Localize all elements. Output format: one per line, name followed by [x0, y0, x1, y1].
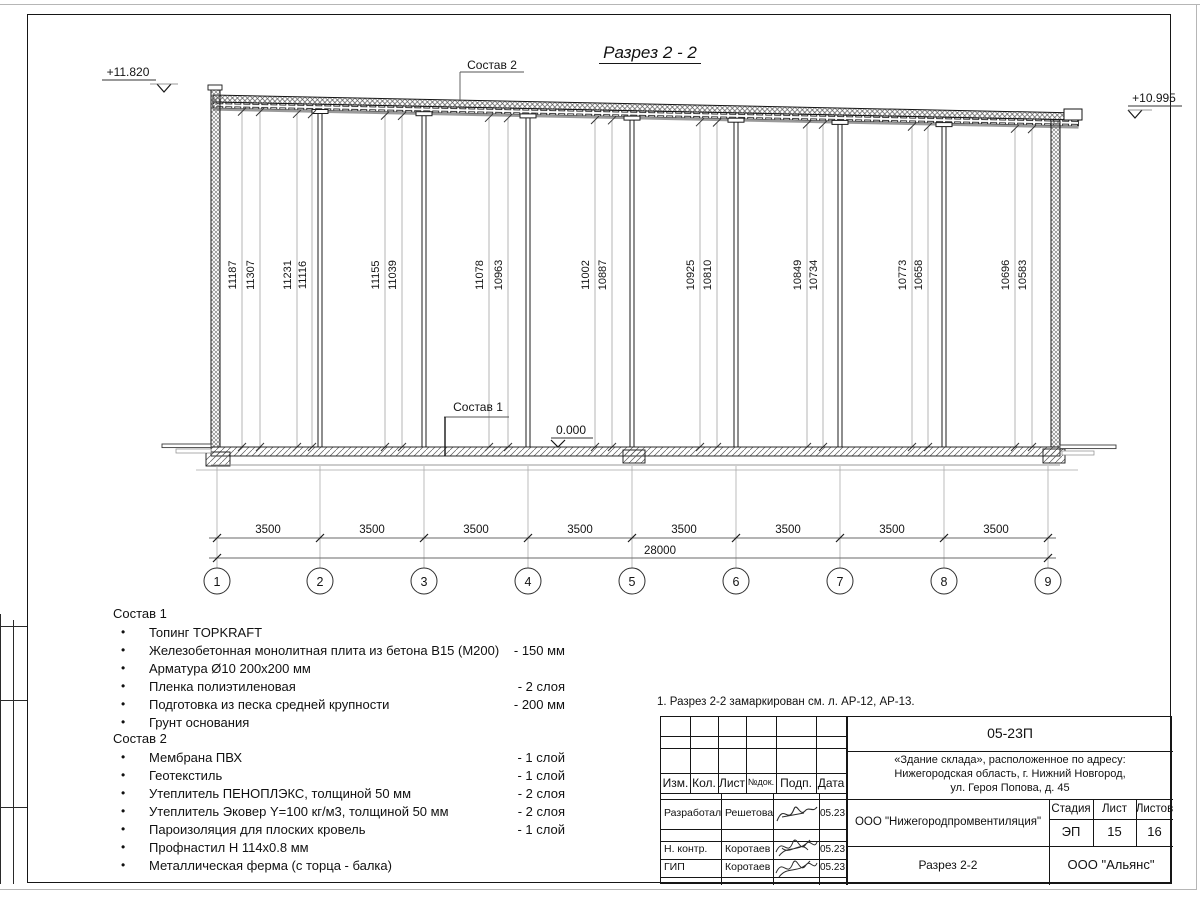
axis-bubbles: 1 2 3 4 5 6 7 8 9 [204, 568, 1061, 594]
list-item: •Железобетонная монолитная плита из бето… [113, 642, 565, 660]
bullet-icon: • [121, 802, 125, 820]
axis-number: 8 [941, 575, 948, 589]
axis-number: 1 [214, 575, 221, 589]
left-wall [211, 88, 220, 447]
threshold-left [162, 444, 211, 453]
height-dim-label: 11307 [245, 260, 257, 290]
footing-left [206, 452, 230, 466]
bay-dim-label: 3500 [879, 524, 905, 536]
height-dim-label: 11187 [227, 261, 239, 290]
drawing-sheet: { "title": "Разрез 2 - 2", "elevations":… [0, 0, 1200, 900]
axis-number: 7 [837, 575, 844, 589]
sidebar-line-outer [0, 614, 1, 884]
height-dim-label: 10773 [897, 260, 909, 291]
bullet-icon: • [121, 838, 125, 856]
page-edge-bottom [0, 889, 1197, 890]
sheet-label: Лист [1093, 799, 1136, 819]
list-item: •Мембрана ПВХ- 1 слой [113, 749, 565, 767]
height-dim-labels: 11187 11307 11231 11116 11155 11039 1107… [227, 260, 1029, 291]
axis-number: 2 [317, 575, 324, 589]
signature [774, 801, 819, 828]
bay-dim-label: 3500 [775, 524, 801, 536]
project-code: 05-23П [847, 717, 1173, 751]
height-dim-label: 11039 [387, 260, 399, 290]
list-item: •Подготовка из песка средней крупности- … [113, 696, 565, 714]
right-wall [1051, 121, 1060, 447]
total-dim-label: 28000 [644, 545, 676, 557]
list-item: •Утеплитель Эковер Y=100 кг/м3, толщиной… [113, 803, 565, 821]
list-item: •Пленка полиэтиленовая- 2 слоя [113, 678, 565, 696]
height-dim-label: 10849 [792, 260, 804, 291]
threshold-right [1060, 445, 1116, 455]
row-role: Разработал [664, 799, 720, 829]
height-dim-label: 11002 [580, 260, 592, 290]
bay-dim-label: 3500 [359, 524, 385, 536]
height-dim-label: 11155 [370, 261, 382, 290]
height-dim-label: 10925 [685, 260, 697, 291]
elevation-right: +10.995 [1128, 91, 1182, 118]
elevation-left-value: +11.820 [107, 65, 150, 79]
col-izm: Изм. [661, 773, 690, 793]
sostav1-heading: Состав 1 [113, 605, 565, 624]
list-item: •Топинг TOPKRAFT [113, 624, 565, 642]
height-dim-label: 10658 [913, 260, 925, 291]
bullet-icon: • [121, 695, 125, 713]
list-item: •Арматура Ø10 200х200 мм [113, 660, 565, 678]
left-wall-cap [208, 85, 222, 90]
bullet-icon: • [121, 820, 125, 838]
height-dim-label: 10583 [1017, 260, 1029, 291]
row-name: Коротаев [725, 859, 772, 877]
stage-label: Стадия [1049, 799, 1093, 819]
bullet-icon: • [121, 748, 125, 766]
col-list: Лист [718, 773, 746, 793]
axis-lines [217, 466, 1048, 568]
sidebar-line-inner [13, 620, 14, 884]
project-object: «Здание склада», расположенное по адресу… [847, 751, 1173, 799]
sheet-note: 1. Разрез 2-2 замаркирован см. л. АР-12,… [657, 696, 915, 708]
bullet-icon: • [121, 784, 125, 802]
height-dim-label: 11231 [282, 260, 294, 290]
height-dim-label: 10963 [493, 260, 505, 291]
height-dim-label: 10696 [1000, 260, 1012, 291]
section-drawing: 11187 11307 11231 11116 11155 11039 1107… [0, 0, 1200, 620]
footing-middle [623, 450, 645, 463]
sostav1-callout: Состав 1 [453, 400, 503, 414]
stage-value: ЭП [1049, 819, 1093, 846]
axis-number: 4 [525, 575, 532, 589]
bay-dim-label: 3500 [671, 524, 697, 536]
axis-number: 6 [733, 575, 740, 589]
sostav2-heading: Состав 2 [113, 730, 565, 749]
bullet-icon: • [121, 713, 125, 731]
axis-number: 5 [629, 575, 636, 589]
elevation-right-value: +10.995 [1132, 91, 1176, 105]
axis-number: 9 [1045, 575, 1052, 589]
bay-dim-label: 3500 [255, 524, 281, 536]
elevation-zero: 0.000 [551, 423, 593, 447]
height-dim-label: 11116 [297, 261, 309, 289]
signature [774, 856, 819, 880]
doc-title: Разрез 2-2 [847, 846, 1049, 885]
sidebar-divider [0, 626, 27, 627]
bullet-icon: • [121, 766, 125, 784]
title-block: Изм. Кол. Лист №док. Подп. Дата Разработ… [660, 716, 1172, 884]
sidebar-divider [0, 700, 27, 701]
bullet-icon: • [121, 623, 125, 641]
sidebar-divider [0, 807, 27, 808]
row-date: 05.23 [819, 841, 846, 859]
elevation-left: +11.820 [102, 65, 178, 92]
bullet-icon: • [121, 641, 125, 659]
bullet-icon: • [121, 659, 125, 677]
height-dim-label: 10810 [702, 260, 714, 291]
row-name: Коротаев [725, 841, 772, 859]
row-date: 05.23 [819, 799, 846, 829]
axis-number: 3 [421, 575, 428, 589]
col-kol: Кол. [690, 773, 718, 793]
row-name: Решетова [725, 799, 772, 829]
bullet-icon: • [121, 677, 125, 695]
col-data: Дата [816, 773, 846, 793]
height-dim-label: 11078 [474, 260, 486, 290]
row-date: 05.23 [819, 859, 846, 877]
list-item: •Пароизоляция для плоских кровель- 1 сло… [113, 821, 565, 839]
list-item: •Геотекстиль- 1 слой [113, 767, 565, 785]
row-role: Н. контр. [664, 841, 720, 859]
sostav2-callout: Состав 2 [467, 58, 517, 72]
bay-dim-label: 3500 [463, 524, 489, 536]
sheets-value: 16 [1136, 819, 1173, 846]
sheets-label: Листов [1136, 799, 1173, 819]
sostav2-leader: Состав 2 [460, 58, 524, 101]
list-item: •Утеплитель ПЕНОПЛЭКС, толщиной 50 мм- 2… [113, 785, 565, 803]
height-dim-label: 10734 [808, 260, 820, 291]
columns [312, 110, 952, 448]
company-name: ООО "Альянс" [1049, 846, 1173, 885]
height-dim-label: 10887 [597, 260, 609, 291]
elevation-zero-value: 0.000 [556, 423, 586, 437]
col-podp: Подп. [776, 773, 816, 793]
list-item: •Профнастил Н 114х0.8 мм [113, 839, 565, 857]
bay-dim-label: 3500 [983, 524, 1009, 536]
list-item: •Металлическая ферма (с торца - балка) [113, 857, 565, 875]
sostav1-list: Состав 1 •Топинг TOPKRAFT •Железобетонна… [113, 605, 565, 732]
sostav2-list: Состав 2 •Мембрана ПВХ- 1 слой •Геотекст… [113, 730, 565, 875]
design-org: ООО "Нижегородпромвентиляция" [847, 799, 1049, 846]
bullet-icon: • [121, 856, 125, 874]
sheet-value: 15 [1093, 819, 1136, 846]
col-ndok: №док. [746, 773, 776, 793]
row-role: ГИП [664, 859, 720, 877]
bay-dim-label: 3500 [567, 524, 593, 536]
roof-end-cap [1064, 109, 1082, 120]
